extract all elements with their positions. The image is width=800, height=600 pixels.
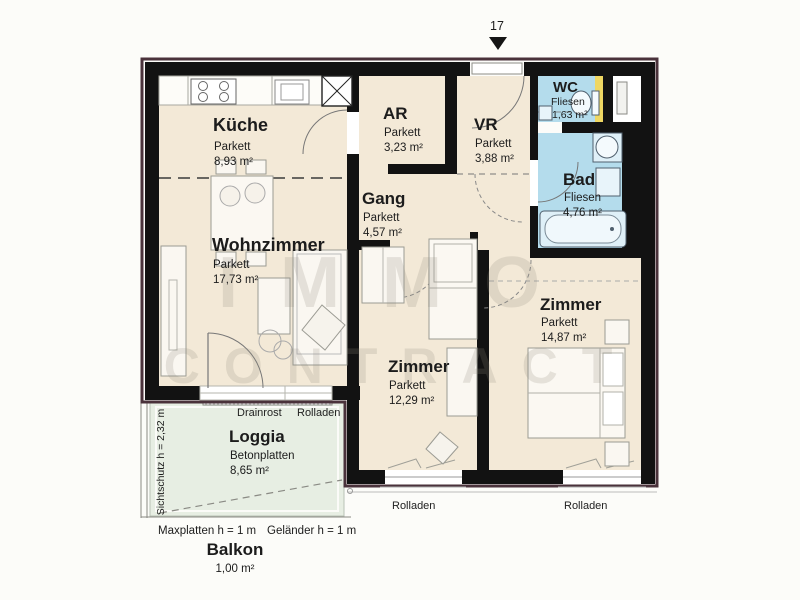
label-kueche-floor: Parkett [214, 141, 251, 153]
label-wohnzimmer-floor: Parkett [213, 259, 250, 271]
label-zimmer-klein-floor: Parkett [389, 380, 426, 392]
wall-top [145, 62, 655, 76]
wall-wc-niche-left [603, 76, 613, 122]
wall-bottom-a [347, 470, 385, 484]
label-maxplatten: Maxplatten h = 1 m [158, 525, 256, 537]
label-zimmer-gross: Zimmer [540, 295, 602, 314]
floor-ar [359, 76, 445, 172]
toilet-tank [592, 91, 599, 115]
wall-ar-bottom-a [347, 164, 358, 174]
wall-ar-vr [445, 62, 457, 174]
label-gelaender: Geländer h = 1 m [267, 525, 356, 537]
wall-bottom-b [462, 470, 563, 484]
wall-right [641, 62, 655, 484]
entrance-marker: 17 [489, 19, 507, 50]
label-balkon-area: 1,00 m² [216, 563, 255, 575]
bathtub-basin [545, 215, 621, 243]
label-drainrost: Drainrost [237, 407, 282, 419]
label-wc-floor: Fliesen [551, 96, 585, 108]
niche-shaft-icon [617, 82, 627, 114]
label-bad-floor: Fliesen [564, 192, 601, 204]
floorplan-page: IMMO CONTRACT Küche Parkett 8,93 m² Wohn… [0, 0, 800, 600]
label-zimmer-gross-area: 14,87 m² [541, 332, 587, 344]
label-zimmer-klein-area: 12,29 m² [389, 395, 435, 407]
label-balkon: Balkon [207, 540, 264, 559]
label-ar-area: 3,23 m² [384, 142, 423, 154]
wall-wc-bottom-a [530, 122, 538, 133]
wall-vr-wc [530, 62, 538, 122]
entrance-arrow-icon [489, 37, 507, 50]
plate-icon [245, 183, 265, 203]
label-vr-floor: Parkett [475, 138, 512, 150]
label-kueche: Küche [213, 115, 268, 135]
pillow-icon [603, 392, 623, 425]
washing-machine-drum [596, 136, 618, 158]
label-vr-area: 3,88 m² [475, 153, 514, 165]
label-loggia-area: 8,65 m² [230, 465, 269, 477]
watermark-line1: IMMO [218, 243, 582, 323]
label-loggia-floor: Betonplatten [230, 450, 295, 462]
wall-left [145, 62, 159, 400]
label-rolladen-left: Rolladen [392, 500, 435, 512]
wall-bad-left-a [530, 133, 538, 160]
nightstand-icon [605, 442, 629, 466]
bathtub-drain [610, 227, 614, 231]
label-bad: Bad [563, 170, 595, 189]
plate-icon [220, 186, 240, 206]
kitchen-fixtures [159, 76, 352, 106]
stove-icon [191, 79, 236, 104]
label-zimmer-gross-floor: Parkett [541, 317, 578, 329]
label-gang: Gang [362, 189, 405, 208]
wall-wc-bottom-b [562, 122, 641, 133]
label-rolladen-right: Rolladen [564, 500, 607, 512]
label-rolladen-top: Rolladen [297, 407, 340, 419]
label-gang-floor: Parkett [363, 212, 400, 224]
bad-door-opening [530, 160, 538, 206]
label-gang-area: 4,57 m² [363, 227, 402, 239]
shaft-icon [322, 76, 352, 106]
label-wohnzimmer: Wohnzimmer [212, 235, 325, 255]
floorplan-drawing: IMMO CONTRACT Küche Parkett 8,93 m² Wohn… [0, 0, 800, 600]
wc-sink-icon [539, 106, 552, 120]
label-wc: WC [553, 79, 578, 96]
entrance-door-leaf [472, 63, 522, 74]
ar-door-opening [347, 112, 359, 154]
label-bad-area: 4,76 m² [563, 207, 602, 219]
unit-number: 17 [490, 19, 504, 33]
label-ar-floor: Parkett [384, 127, 421, 139]
label-wohnzimmer-area: 17,73 m² [213, 274, 259, 286]
label-sichtschutz: Sichtschutz h = 2,32 m [155, 408, 167, 515]
label-kueche-area: 8,93 m² [214, 156, 253, 168]
label-vr: VR [474, 115, 498, 134]
label-zimmer-klein: Zimmer [388, 357, 450, 376]
label-wc-area: 1,63 m² [552, 109, 588, 121]
label-ar: AR [383, 104, 408, 123]
rail-post-marker [348, 489, 353, 494]
label-loggia: Loggia [229, 427, 285, 446]
